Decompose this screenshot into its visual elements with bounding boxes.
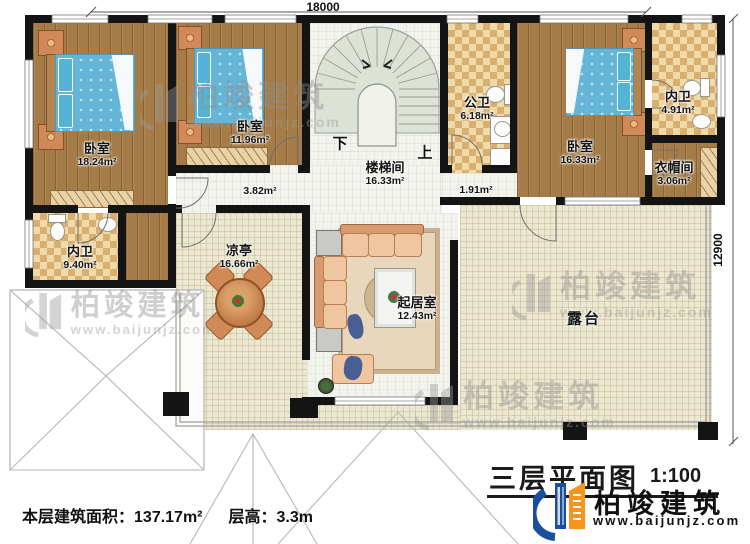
room-name: 内卫 — [661, 90, 694, 105]
room-area: 16.33m² — [560, 154, 599, 166]
sofa-seat — [323, 304, 347, 329]
watermark-logo-icon — [25, 287, 65, 338]
room-area: 11.96m² — [231, 134, 270, 146]
room-label-bedroom1: 卧室 18.24m² — [77, 142, 116, 168]
pavilion-table-centerpiece — [231, 294, 245, 308]
room-label-ensuite-left: 内卫 9.40m² — [63, 245, 96, 271]
brand-logo-icon — [533, 477, 595, 541]
sink — [494, 121, 511, 137]
pillow — [197, 86, 211, 118]
room-name: 衣帽间 — [654, 161, 693, 176]
room-name: 楼梯间 — [365, 161, 404, 176]
sofa-seat — [342, 233, 369, 257]
pillow — [58, 94, 73, 128]
pillow — [58, 58, 73, 92]
toilet-tank — [504, 84, 515, 105]
room-area: 12.43m² — [397, 310, 436, 322]
room-name: 卧室 — [77, 142, 116, 157]
floor-plan-canvas: 卧室 18.24m² 卧室 11.96m² 卧室 16.33m² 楼梯间 16.… — [0, 0, 750, 544]
room-area: 16.33m² — [365, 175, 404, 187]
floor-area-label: 本层建筑面积： — [22, 509, 134, 526]
sofa-seat — [368, 233, 395, 257]
stair-up-label: 上 — [417, 142, 432, 163]
room-name: 起居室 — [397, 296, 436, 311]
floor-area-value: 137.17m² — [134, 509, 203, 526]
area-label-hallway-right: 1.91m² — [459, 185, 492, 197]
sink — [692, 114, 711, 129]
wardrobe-bedroom2 — [186, 147, 268, 166]
room-label-bedroom3: 卧室 16.33m² — [560, 140, 599, 166]
sofa-seat — [323, 256, 347, 281]
dimension-width: 18000 — [293, 0, 353, 14]
room-area: 1.91m² — [459, 185, 492, 197]
room-label-living-room: 起居室 12.43m² — [397, 296, 436, 322]
brand-website: www.baijunjz.com — [593, 513, 740, 528]
nightstand — [178, 26, 202, 50]
dimension-height: 12900 — [711, 222, 725, 278]
room-area: 6.18m² — [460, 110, 493, 122]
pillow — [617, 52, 631, 81]
end-table — [316, 230, 342, 256]
room-label-bedroom2: 卧室 11.96m² — [231, 120, 270, 146]
pillow — [617, 82, 631, 111]
room-area: 3.06m² — [654, 175, 693, 187]
plant — [318, 378, 334, 394]
room-label-terrace: 露台 — [567, 312, 601, 329]
toilet-tank — [700, 78, 710, 97]
area-label-hallway-left: 3.82m² — [243, 186, 276, 198]
toilet — [50, 222, 65, 241]
room-area: 9.40m² — [63, 259, 96, 271]
room-label-ensuite-right: 内卫 4.91m² — [661, 90, 694, 116]
room-label-stairwell: 楼梯间 16.33m² — [365, 161, 404, 187]
room-name: 凉亭 — [219, 244, 258, 259]
room-area: 16.66m² — [219, 258, 258, 270]
floor-terrace-connector — [307, 405, 460, 430]
floor-bedroom1-closet-nook — [126, 213, 168, 280]
room-label-pavilion: 凉亭 16.66m² — [219, 244, 258, 270]
sofa-seat — [394, 233, 422, 257]
floor-height-value: 3.3m — [277, 509, 313, 526]
floor-height-label: 层高： — [229, 509, 277, 526]
wardrobe-bedroom1 — [50, 190, 134, 208]
nightstand — [38, 30, 64, 56]
room-label-public-bath: 公卫 6.18m² — [460, 96, 493, 122]
room-area: 4.91m² — [661, 104, 694, 116]
room-name: 内卫 — [63, 245, 96, 260]
sink — [98, 217, 117, 232]
room-area: 3.82m² — [243, 186, 276, 198]
washer — [490, 148, 513, 171]
room-name: 卧室 — [560, 140, 599, 155]
room-name: 露台 — [567, 312, 601, 329]
room-name: 公卫 — [460, 96, 493, 111]
pillow — [197, 52, 211, 84]
footer-stats: 本层建筑面积：137.17m²层高：3.3m — [22, 503, 313, 527]
sofa-seat — [323, 280, 347, 305]
wardrobe-cloakroom — [700, 147, 719, 199]
stair-down-label: 下 — [332, 133, 347, 154]
room-label-cloakroom: 衣帽间 3.06m² — [654, 161, 693, 187]
room-area: 18.24m² — [77, 156, 116, 168]
end-table — [316, 326, 342, 352]
room-name: 卧室 — [231, 120, 270, 135]
